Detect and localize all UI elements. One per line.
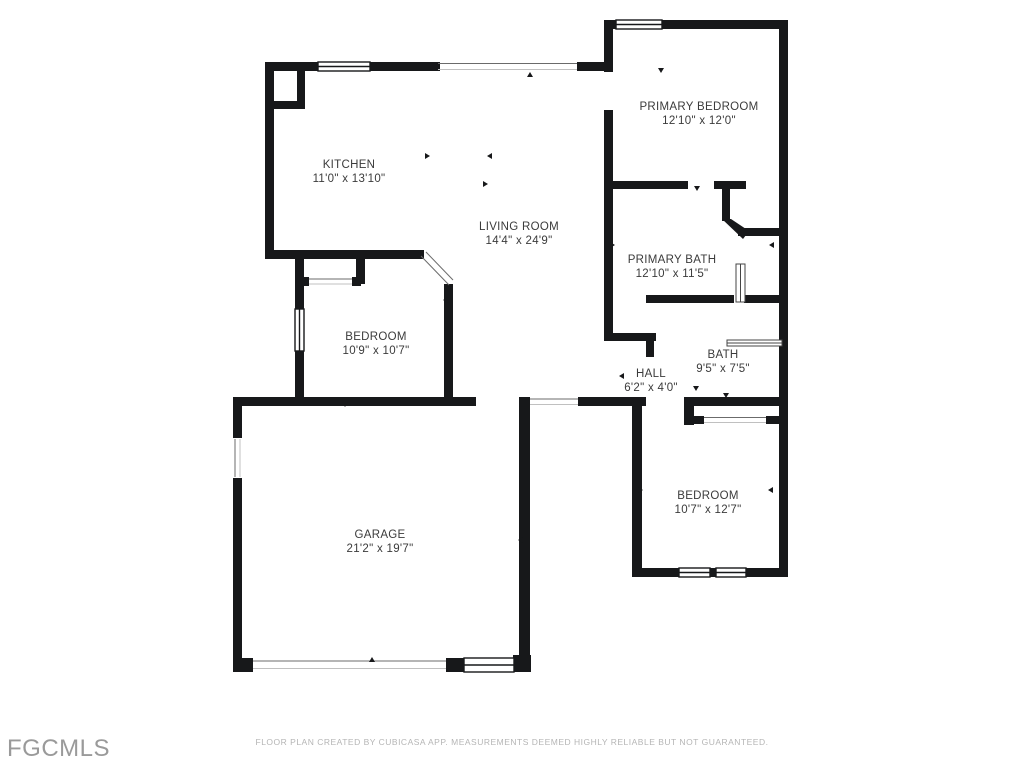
bath-vanity [727,340,782,346]
room-dimensions: 6'2" x 4'0" [624,381,678,395]
window-bedroom2-bottom-right [716,568,746,577]
room-label-kitchen: KITCHEN 11'0" x 13'10" [313,158,386,186]
floor-plan-page: KITCHEN 11'0" x 13'10" LIVING ROOM 14'4"… [0,0,1024,768]
room-name: GARAGE [347,528,414,542]
room-dimensions: 10'9" x 10'7" [343,344,410,358]
room-label-bedroom-bottom-right: BEDROOM 10'7" x 12'7" [675,489,742,517]
room-dimensions: 12'10" x 11'5" [628,267,717,281]
room-label-garage: GARAGE 21'2" x 19'7" [347,528,414,556]
room-dimensions: 21'2" x 19'7" [347,542,414,556]
window-garage-bottom [464,658,514,672]
window-primary-bedroom-top [616,20,662,29]
room-dimensions: 12'10" x 12'0" [639,114,758,128]
primary-bath-fixture [736,264,745,302]
room-name: BEDROOM [343,330,410,344]
room-label-hall: HALL 6'2" x 4'0" [624,367,678,395]
room-label-bedroom-middle: BEDROOM 10'9" x 10'7" [343,330,410,358]
window-bedroom-left [295,309,304,351]
room-dimensions: 11'0" x 13'10" [313,172,386,186]
room-name: PRIMARY BATH [628,253,717,267]
room-label-living-room: LIVING ROOM 14'4" x 24'9" [479,220,559,248]
room-name: HALL [624,367,678,381]
room-dimensions: 14'4" x 24'9" [479,234,559,248]
window-kitchen-top [318,62,370,71]
room-name: LIVING ROOM [479,220,559,234]
window-bedroom2-bottom-left [679,568,710,577]
disclaimer-text: FLOOR PLAN CREATED BY CUBICASA APP. MEAS… [0,737,1024,747]
room-dimensions: 10'7" x 12'7" [675,503,742,517]
room-name: BATH [696,348,750,362]
floor-plan-drawing [0,0,1024,768]
room-dimensions: 9'5" x 7'5" [696,362,750,376]
fgcmls-logo: FGCMLS [7,735,110,763]
room-name: BEDROOM [675,489,742,503]
room-label-primary-bath: PRIMARY BATH 12'10" x 11'5" [628,253,717,281]
room-label-bath: BATH 9'5" x 7'5" [696,348,750,376]
room-label-primary-bedroom: PRIMARY BEDROOM 12'10" x 12'0" [639,100,758,128]
room-name: PRIMARY BEDROOM [639,100,758,114]
room-name: KITCHEN [313,158,386,172]
